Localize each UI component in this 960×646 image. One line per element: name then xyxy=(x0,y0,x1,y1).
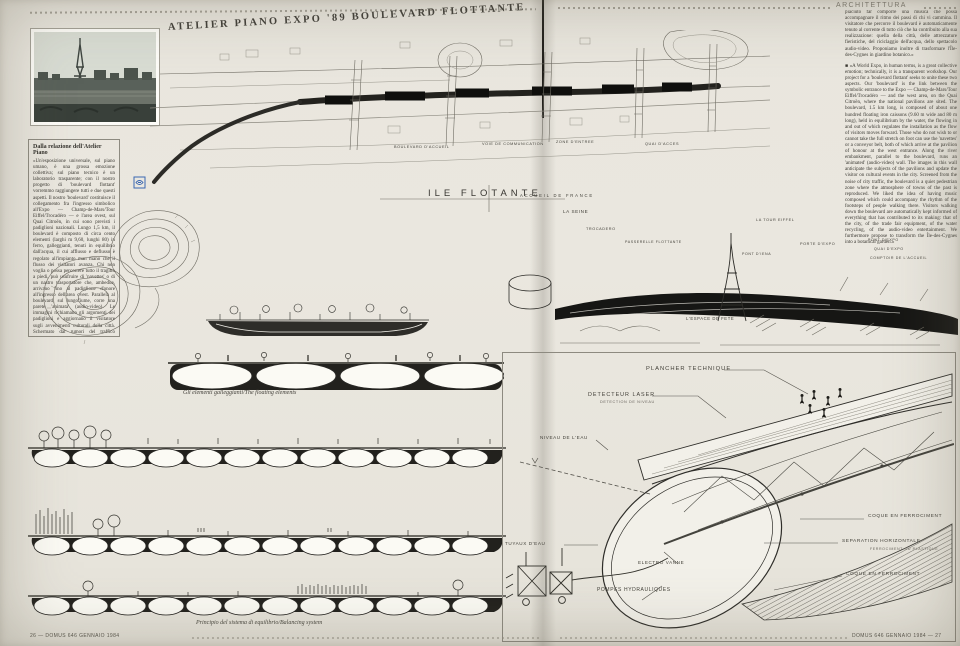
axon-label-separation-horizontale: SEPARATION HORIZONTALE xyxy=(842,539,921,544)
axon-label-coque-en-ferrociment-1: COQUE EN FERROCIMENT xyxy=(868,514,942,519)
top-rule-right-a xyxy=(558,7,830,9)
footer-rule-right xyxy=(560,637,848,639)
persp-label-tour-eiffel: LA TOUR EIFFEL xyxy=(756,218,794,222)
persp-label-porte-dexpo: PORTE D'EXPO xyxy=(800,242,835,246)
persp-label-passerelle: PASSERELLE FLOTTANTE xyxy=(625,240,682,244)
axon-label-niveau-de-leau: NIVEAU DE L'EAU xyxy=(540,435,588,440)
plan-label-boulevard-daccueil: BOULEVARD D'ACCUEIL xyxy=(394,145,450,149)
persp-label-la-seine: LA SEINE xyxy=(563,209,588,214)
paris-photo xyxy=(30,28,160,126)
site-plan-drawing xyxy=(150,30,770,212)
axon-label-ferrociment-ou-plastique: FERROCIMENT OU PLASTIQUE xyxy=(870,547,938,551)
magazine-spread: ARCHITETTURA ATELIER PIANO EXPO '89 BOUL… xyxy=(0,0,960,646)
right-column-italian: piaciuto far comporre una musica che pos… xyxy=(845,10,957,59)
axonometric-drawing xyxy=(502,352,954,640)
section-header: ARCHITETTURA xyxy=(836,2,907,9)
top-rule-right-b xyxy=(924,7,956,9)
plan-label-accueil-de-france: ACCUEIL DE FRANCE xyxy=(520,193,594,198)
pontoon-row-2 xyxy=(28,408,506,470)
axon-label-tuyaux-deau: TUYAUX D'EAU xyxy=(505,541,545,546)
persp-label-trocadero: TROCADERO xyxy=(586,227,616,231)
right-column-english: ■ «A World Expo, in human terms, is a gr… xyxy=(845,64,957,247)
axon-label-plancher-technique: PLANCHER TECHNIQUE xyxy=(646,366,731,372)
left-column-heading: Dalla relazione dell'Atelier Piano xyxy=(33,144,115,156)
pontoon-row-1 xyxy=(168,348,504,394)
caption-balancing-system: Principio del sistema di equilibrio/Bala… xyxy=(196,620,322,626)
plan-label-voie-de-communication: VOIE DE COMMUNICATION xyxy=(482,142,544,146)
persp-label-espace-de-fete: L'ESPACE DE FETE xyxy=(686,316,734,321)
caption-floating-elements: Gli elementi galleggianti/The floating e… xyxy=(183,390,296,396)
axon-label-electro-vanne: ELECTRO VANNE xyxy=(638,560,684,565)
plan-label-zone-dentree: ZONE D'ENTREE xyxy=(556,140,594,144)
axon-label-pompes-hydrauliques: POMPES HYDRAULIQUES xyxy=(597,587,671,593)
axon-label-detecteur-laser: DETECTEUR LASER xyxy=(588,392,655,398)
footer-left: 26 — DOMUS 646 GENNAIO 1984 xyxy=(30,633,119,639)
plan-label-quai-dacces: QUAI D'ACCES xyxy=(645,142,679,146)
pontoon-row-4 xyxy=(28,560,506,618)
axon-label-coque-en-ferrociment-2: COQUE EN FERROCIMENT xyxy=(846,572,920,577)
axon-label-detection-de-niveau: DETECTION DE NIVEAU xyxy=(600,400,655,404)
persp-label-pont-diena: PONT D'IENA xyxy=(742,252,771,256)
elevation-drawing xyxy=(200,288,435,348)
park-plan-drawing xyxy=(25,198,210,348)
spread-title: ATELIER PIANO EXPO '89 BOULEVARD FLOTTAN… xyxy=(168,2,526,33)
paris-photo-image xyxy=(34,32,156,122)
pontoon-row-3 xyxy=(28,492,506,558)
right-text-column: piaciuto far comporre una musica che pos… xyxy=(845,10,957,306)
footer-rule-left xyxy=(192,637,540,639)
blue-stamp-icon xyxy=(133,176,146,189)
footer-right: DOMUS 646 GENNAIO 1984 — 27 xyxy=(852,633,941,639)
